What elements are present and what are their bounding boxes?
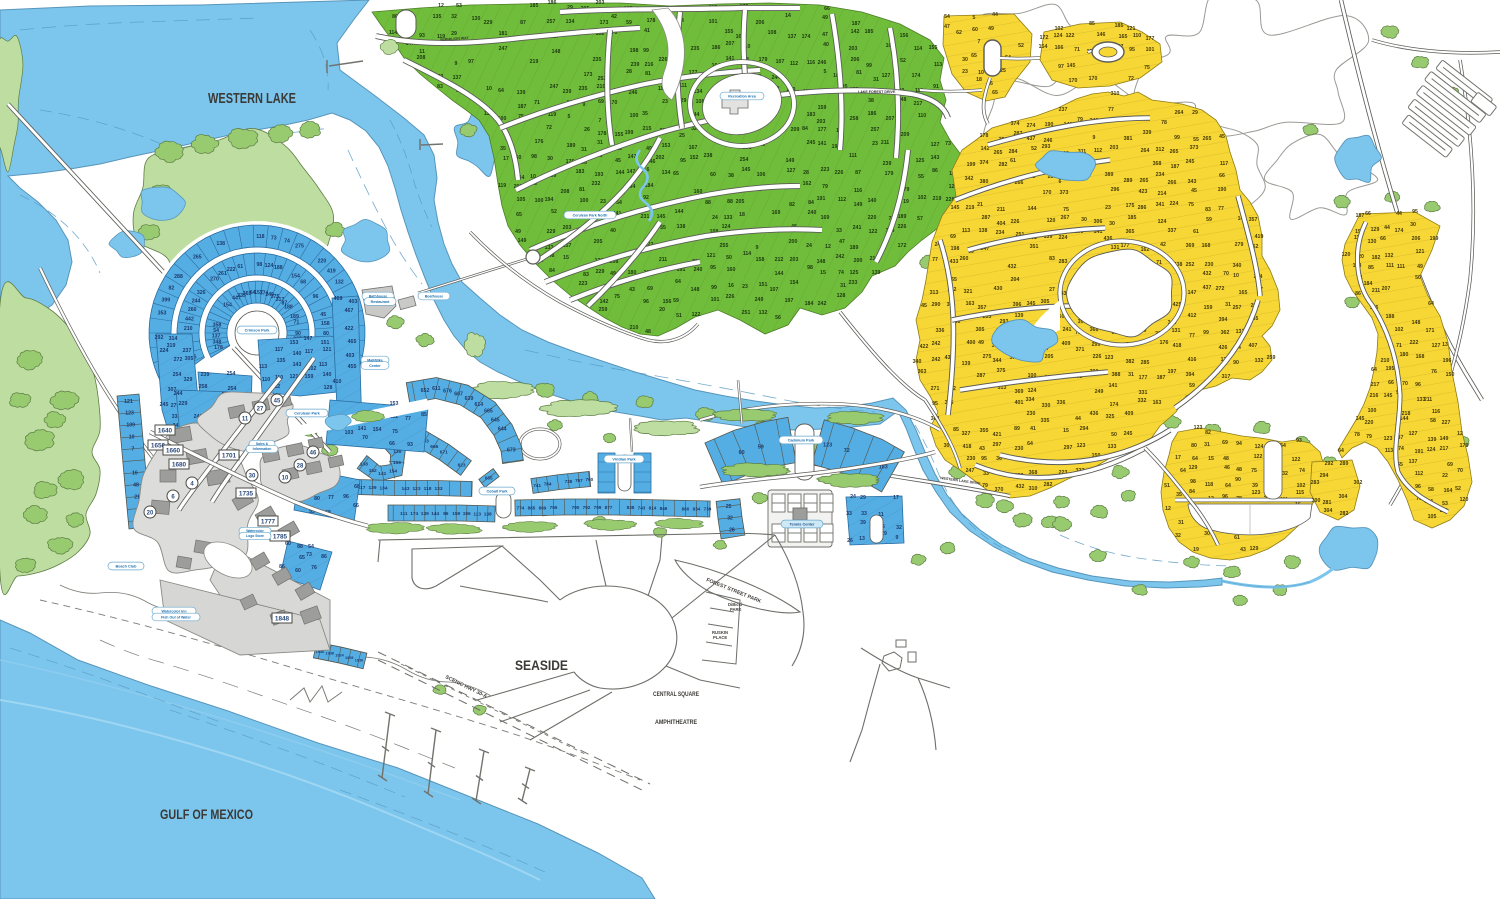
- svg-text:389: 389: [1105, 172, 1114, 178]
- svg-text:160: 160: [727, 267, 736, 273]
- svg-text:235: 235: [579, 86, 588, 92]
- svg-text:51: 51: [676, 313, 682, 319]
- svg-text:117: 117: [275, 347, 283, 353]
- svg-text:86: 86: [321, 554, 327, 560]
- svg-text:289: 289: [1340, 461, 1349, 467]
- svg-text:149: 149: [1440, 436, 1449, 442]
- svg-text:89: 89: [1014, 426, 1020, 432]
- svg-text:207: 207: [726, 41, 735, 47]
- svg-text:342: 342: [965, 176, 974, 182]
- svg-text:784: 784: [544, 482, 552, 487]
- svg-text:137: 137: [453, 75, 462, 81]
- svg-text:110: 110: [262, 377, 270, 383]
- svg-text:292: 292: [155, 335, 164, 341]
- svg-text:145: 145: [1067, 63, 1076, 69]
- svg-text:154: 154: [389, 469, 397, 475]
- svg-text:185: 185: [1115, 23, 1124, 29]
- svg-text:68: 68: [300, 280, 306, 286]
- svg-text:66: 66: [1365, 211, 1371, 217]
- svg-text:179: 179: [885, 171, 894, 177]
- svg-text:83: 83: [1205, 207, 1211, 213]
- svg-text:230: 230: [1015, 446, 1024, 452]
- svg-text:293: 293: [1042, 144, 1051, 150]
- svg-text:107: 107: [770, 287, 779, 293]
- svg-text:21: 21: [977, 202, 983, 208]
- svg-text:177: 177: [1139, 375, 1148, 381]
- svg-text:245: 245: [1124, 431, 1133, 437]
- svg-text:66: 66: [824, 6, 830, 12]
- svg-text:44: 44: [992, 12, 998, 18]
- svg-text:57: 57: [917, 216, 923, 222]
- svg-text:66: 66: [1388, 380, 1394, 386]
- svg-text:220: 220: [868, 215, 877, 221]
- svg-text:242: 242: [836, 254, 845, 260]
- svg-text:120: 120: [1342, 252, 1351, 258]
- svg-text:292: 292: [1325, 461, 1334, 467]
- svg-text:282: 282: [999, 162, 1008, 168]
- svg-text:325: 325: [1106, 414, 1115, 420]
- svg-text:267: 267: [1061, 215, 1070, 221]
- svg-text:95: 95: [1129, 47, 1135, 53]
- svg-text:195: 195: [1386, 366, 1395, 372]
- svg-text:81: 81: [856, 70, 862, 76]
- svg-text:380: 380: [980, 179, 989, 185]
- svg-text:141: 141: [818, 141, 827, 147]
- svg-text:31: 31: [1225, 302, 1231, 308]
- svg-text:217: 217: [914, 101, 923, 107]
- svg-text:202: 202: [656, 155, 665, 161]
- svg-text:75: 75: [614, 294, 620, 300]
- svg-text:80: 80: [1191, 443, 1197, 449]
- svg-text:432: 432: [1008, 264, 1017, 270]
- svg-text:230: 230: [1027, 411, 1036, 417]
- svg-text:287: 287: [982, 215, 991, 221]
- svg-text:341: 341: [1156, 202, 1165, 208]
- svg-text:151: 151: [759, 282, 768, 288]
- svg-text:297: 297: [993, 442, 1002, 448]
- svg-text:239: 239: [883, 161, 892, 167]
- svg-text:9: 9: [756, 245, 759, 251]
- svg-text:611: 611: [432, 386, 440, 392]
- svg-text:129: 129: [1371, 227, 1380, 233]
- svg-text:403: 403: [346, 353, 355, 359]
- svg-text:170: 170: [1069, 78, 1078, 84]
- svg-text:16: 16: [132, 471, 138, 477]
- svg-text:145: 145: [657, 214, 666, 220]
- svg-text:74: 74: [1299, 468, 1305, 474]
- svg-text:211: 211: [881, 140, 889, 146]
- svg-text:15: 15: [1063, 428, 1069, 434]
- svg-text:42: 42: [611, 14, 617, 20]
- svg-text:48: 48: [133, 482, 139, 488]
- svg-text:17: 17: [893, 495, 899, 501]
- svg-text:100: 100: [580, 198, 589, 204]
- svg-text:357: 357: [1249, 217, 1258, 223]
- svg-text:72: 72: [546, 125, 552, 131]
- svg-text:288: 288: [174, 274, 183, 280]
- svg-text:121: 121: [124, 399, 133, 405]
- svg-text:105: 105: [1428, 514, 1437, 520]
- svg-text:373: 373: [1060, 190, 1069, 196]
- svg-text:CENTRAL SQUARE: CENTRAL SQUARE: [653, 691, 699, 698]
- svg-text:Restaurant: Restaurant: [371, 300, 391, 304]
- svg-text:144: 144: [1028, 206, 1037, 212]
- svg-text:125: 125: [916, 158, 925, 164]
- svg-text:403: 403: [349, 299, 358, 305]
- svg-text:132: 132: [1255, 358, 1264, 364]
- svg-text:166: 166: [1055, 45, 1064, 51]
- svg-text:260: 260: [960, 256, 969, 262]
- svg-text:329: 329: [184, 377, 193, 383]
- svg-text:305: 305: [185, 356, 194, 362]
- svg-text:112: 112: [790, 61, 798, 67]
- svg-text:1701: 1701: [222, 453, 237, 460]
- svg-text:169: 169: [821, 215, 830, 221]
- svg-text:272: 272: [174, 357, 183, 363]
- svg-text:358: 358: [213, 322, 222, 328]
- svg-text:152: 152: [690, 155, 699, 161]
- svg-text:59: 59: [758, 444, 764, 450]
- svg-text:436: 436: [1090, 411, 1099, 417]
- svg-text:174: 174: [802, 34, 811, 40]
- svg-text:337: 337: [1168, 228, 1177, 234]
- svg-text:123: 123: [1077, 443, 1086, 449]
- svg-text:116: 116: [854, 188, 862, 194]
- svg-text:304: 304: [1339, 494, 1348, 500]
- svg-text:23: 23: [962, 69, 968, 75]
- svg-text:645: 645: [491, 418, 500, 424]
- svg-text:39: 39: [1252, 483, 1258, 489]
- svg-text:281: 281: [1323, 500, 1332, 506]
- svg-text:70: 70: [362, 435, 368, 441]
- svg-text:66: 66: [389, 441, 395, 447]
- svg-text:258: 258: [199, 384, 208, 390]
- svg-text:44: 44: [1384, 225, 1390, 231]
- svg-text:375: 375: [997, 368, 1006, 374]
- svg-text:15: 15: [563, 255, 569, 261]
- svg-text:400: 400: [967, 340, 976, 346]
- svg-text:289: 289: [1124, 178, 1133, 184]
- svg-text:154: 154: [223, 302, 232, 308]
- svg-text:124: 124: [1054, 33, 1063, 39]
- svg-text:676: 676: [443, 389, 452, 395]
- svg-text:127: 127: [931, 142, 940, 148]
- svg-text:42: 42: [1160, 242, 1166, 248]
- svg-text:186: 186: [548, 0, 557, 6]
- svg-text:30: 30: [962, 57, 968, 63]
- svg-text:176: 176: [1160, 340, 1169, 346]
- svg-text:77: 77: [1218, 206, 1224, 212]
- svg-text:187: 187: [1157, 375, 1166, 381]
- svg-text:77: 77: [405, 416, 411, 422]
- svg-text:374: 374: [1011, 121, 1020, 127]
- svg-text:135: 135: [433, 14, 442, 20]
- svg-text:122: 122: [869, 229, 878, 235]
- svg-text:59: 59: [673, 298, 679, 304]
- svg-text:74: 74: [1398, 446, 1404, 452]
- svg-text:124: 124: [1427, 447, 1436, 453]
- svg-text:137: 137: [212, 334, 221, 340]
- svg-text:199: 199: [625, 130, 634, 136]
- svg-text:344: 344: [993, 358, 1002, 364]
- svg-text:7: 7: [599, 118, 602, 124]
- svg-text:132: 132: [335, 279, 344, 285]
- svg-text:58: 58: [1430, 418, 1436, 424]
- svg-text:PARK: PARK: [730, 607, 742, 612]
- svg-text:217: 217: [1440, 446, 1449, 452]
- svg-text:158: 158: [321, 321, 330, 327]
- svg-text:45: 45: [615, 158, 621, 164]
- svg-text:100: 100: [535, 198, 544, 204]
- svg-text:418: 418: [963, 444, 972, 450]
- svg-text:32: 32: [1175, 533, 1181, 539]
- svg-text:164: 164: [1444, 488, 1453, 494]
- svg-text:208: 208: [417, 55, 426, 61]
- svg-text:394: 394: [1219, 317, 1228, 323]
- svg-text:185: 185: [865, 29, 874, 35]
- svg-text:418: 418: [1173, 343, 1182, 349]
- svg-text:135: 135: [277, 358, 286, 364]
- svg-text:103: 103: [345, 430, 354, 436]
- svg-text:369: 369: [1186, 243, 1195, 249]
- svg-text:29: 29: [860, 495, 866, 501]
- svg-text:Watercolor Inn: Watercolor Inn: [161, 609, 186, 613]
- svg-text:1680: 1680: [172, 462, 187, 469]
- svg-text:60: 60: [295, 568, 301, 574]
- svg-text:348: 348: [213, 339, 222, 345]
- svg-text:Logo Store: Logo Store: [246, 534, 264, 538]
- svg-text:48: 48: [645, 329, 651, 335]
- svg-text:410: 410: [333, 379, 342, 385]
- svg-text:113: 113: [934, 62, 942, 68]
- svg-text:64: 64: [1428, 301, 1434, 307]
- svg-text:87: 87: [520, 20, 526, 26]
- svg-text:156: 156: [900, 33, 909, 39]
- svg-text:168: 168: [1202, 243, 1211, 249]
- svg-text:302: 302: [1354, 480, 1363, 486]
- svg-text:227: 227: [1442, 420, 1451, 426]
- svg-text:60: 60: [739, 450, 745, 456]
- svg-text:422: 422: [345, 326, 354, 332]
- svg-text:143: 143: [931, 155, 940, 161]
- svg-text:814: 814: [649, 506, 657, 511]
- svg-text:20: 20: [659, 307, 665, 313]
- svg-text:159: 159: [305, 374, 314, 380]
- svg-text:151: 151: [321, 340, 330, 346]
- svg-text:73: 73: [271, 235, 277, 241]
- svg-text:24: 24: [850, 494, 856, 500]
- svg-text:124: 124: [1158, 219, 1167, 225]
- svg-text:134: 134: [662, 170, 671, 176]
- svg-text:178: 178: [598, 131, 607, 137]
- svg-text:685: 685: [485, 475, 493, 480]
- svg-text:185: 185: [530, 3, 539, 9]
- svg-text:60: 60: [972, 27, 978, 33]
- svg-text:31: 31: [1128, 372, 1134, 378]
- svg-text:154: 154: [1039, 44, 1048, 50]
- svg-text:77: 77: [932, 257, 938, 263]
- svg-text:35: 35: [642, 111, 648, 117]
- svg-text:226: 226: [1011, 219, 1020, 225]
- svg-text:154: 154: [790, 280, 799, 286]
- svg-text:229: 229: [484, 20, 493, 26]
- svg-text:88: 88: [705, 200, 711, 206]
- svg-text:254: 254: [173, 372, 182, 378]
- svg-text:79: 79: [822, 184, 828, 190]
- svg-text:100: 100: [630, 113, 639, 119]
- svg-text:53: 53: [456, 3, 462, 9]
- svg-text:61: 61: [1234, 535, 1240, 541]
- svg-text:222: 222: [1410, 340, 1419, 346]
- svg-text:1938: 1938: [325, 652, 333, 656]
- svg-text:774: 774: [517, 506, 525, 511]
- svg-text:30: 30: [1109, 221, 1115, 227]
- svg-text:123: 123: [1105, 355, 1114, 361]
- svg-text:216: 216: [1370, 393, 1379, 399]
- svg-text:272: 272: [1216, 286, 1225, 292]
- svg-text:229: 229: [547, 229, 556, 235]
- svg-text:40: 40: [823, 42, 829, 48]
- svg-text:182: 182: [1372, 255, 1381, 261]
- svg-text:74: 74: [284, 239, 290, 245]
- svg-text:32: 32: [896, 525, 902, 531]
- svg-text:174: 174: [410, 511, 418, 517]
- svg-text:134: 134: [379, 486, 387, 492]
- svg-text:374: 374: [980, 160, 989, 166]
- svg-text:159: 159: [1204, 305, 1213, 311]
- svg-text:215: 215: [643, 126, 652, 132]
- svg-text:231: 231: [641, 214, 650, 220]
- svg-text:95: 95: [710, 265, 716, 271]
- svg-text:336: 336: [1057, 400, 1066, 406]
- svg-text:760: 760: [585, 477, 593, 482]
- svg-text:141: 141: [378, 471, 386, 477]
- svg-text:102: 102: [1055, 26, 1064, 32]
- svg-text:294: 294: [1320, 473, 1329, 479]
- svg-text:Beach Club: Beach Club: [116, 564, 138, 568]
- svg-text:148: 148: [1412, 320, 1421, 326]
- svg-text:85: 85: [1089, 21, 1095, 27]
- svg-text:29: 29: [1192, 110, 1198, 116]
- svg-text:76: 76: [311, 565, 317, 571]
- svg-text:60: 60: [285, 541, 291, 547]
- svg-text:154: 154: [373, 427, 382, 433]
- svg-text:258: 258: [850, 116, 859, 122]
- svg-text:30: 30: [1081, 217, 1087, 223]
- svg-text:6: 6: [1059, 179, 1062, 185]
- svg-text:86: 86: [1355, 291, 1361, 297]
- svg-text:123: 123: [1194, 425, 1203, 431]
- svg-text:93: 93: [419, 33, 425, 39]
- svg-text:65: 65: [673, 171, 679, 177]
- svg-text:141: 141: [1109, 383, 1118, 389]
- svg-text:1925: 1925: [345, 656, 353, 660]
- svg-text:64: 64: [1180, 468, 1186, 474]
- svg-text:149: 149: [518, 238, 527, 244]
- svg-text:296: 296: [1111, 187, 1120, 193]
- svg-text:173: 173: [584, 72, 593, 78]
- svg-text:251: 251: [742, 310, 751, 316]
- svg-text:27: 27: [257, 406, 264, 412]
- svg-text:98: 98: [531, 154, 537, 160]
- svg-text:343: 343: [1188, 179, 1197, 185]
- svg-text:86: 86: [932, 168, 938, 174]
- svg-text:102: 102: [918, 195, 927, 201]
- svg-text:75: 75: [1251, 468, 1257, 474]
- svg-text:153: 153: [290, 340, 299, 346]
- svg-text:91: 91: [933, 84, 939, 90]
- svg-text:83: 83: [583, 272, 589, 278]
- svg-text:275: 275: [983, 354, 992, 360]
- svg-text:738: 738: [565, 479, 573, 484]
- svg-text:12: 12: [825, 244, 831, 250]
- svg-text:159: 159: [452, 511, 460, 517]
- svg-text:423: 423: [1139, 189, 1148, 195]
- svg-text:145: 145: [1356, 416, 1365, 422]
- svg-text:792: 792: [583, 505, 591, 510]
- svg-text:38: 38: [728, 173, 734, 179]
- svg-text:159: 159: [393, 460, 401, 466]
- svg-text:327: 327: [962, 431, 971, 437]
- svg-text:52: 52: [1031, 146, 1037, 152]
- svg-text:31: 31: [1204, 442, 1210, 448]
- svg-text:203: 203: [563, 225, 572, 231]
- svg-text:145: 145: [742, 167, 751, 173]
- svg-text:209: 209: [901, 132, 910, 138]
- svg-text:85: 85: [1368, 265, 1374, 271]
- svg-text:124: 124: [722, 224, 731, 230]
- svg-text:81: 81: [645, 71, 651, 77]
- svg-text:30: 30: [547, 156, 553, 162]
- svg-text:69: 69: [1447, 462, 1453, 468]
- svg-text:336: 336: [936, 328, 945, 334]
- svg-text:334: 334: [1026, 397, 1035, 403]
- svg-text:138: 138: [677, 224, 686, 230]
- svg-text:96: 96: [1415, 484, 1421, 490]
- svg-text:25: 25: [726, 504, 732, 510]
- svg-text:290: 290: [932, 302, 941, 308]
- svg-text:142: 142: [851, 29, 860, 35]
- svg-text:90: 90: [1235, 477, 1241, 483]
- svg-text:99: 99: [1203, 330, 1209, 336]
- svg-text:GULF OF MEXICO: GULF OF MEXICO: [160, 807, 253, 822]
- svg-text:197: 197: [1168, 369, 1177, 375]
- svg-text:Fish Out of Water: Fish Out of Water: [161, 615, 191, 619]
- svg-text:45: 45: [1219, 134, 1225, 140]
- svg-text:10: 10: [282, 475, 289, 481]
- svg-text:48: 48: [1236, 467, 1242, 473]
- svg-text:186: 186: [712, 45, 721, 51]
- svg-text:300: 300: [1312, 498, 1321, 504]
- svg-text:314: 314: [169, 336, 178, 342]
- svg-text:188: 188: [274, 265, 283, 271]
- svg-text:140: 140: [293, 351, 302, 357]
- svg-text:154: 154: [291, 274, 300, 280]
- svg-text:102: 102: [1297, 483, 1306, 489]
- svg-text:353: 353: [158, 311, 167, 317]
- svg-text:139: 139: [1428, 437, 1437, 443]
- svg-text:10: 10: [129, 435, 135, 441]
- svg-text:357: 357: [978, 305, 987, 311]
- svg-text:24: 24: [806, 243, 812, 249]
- svg-text:100: 100: [1368, 408, 1377, 414]
- svg-text:98: 98: [257, 262, 263, 268]
- svg-text:95: 95: [932, 401, 938, 407]
- svg-text:388: 388: [1112, 372, 1121, 378]
- svg-text:59: 59: [1206, 217, 1212, 223]
- svg-text:75: 75: [1188, 202, 1194, 208]
- svg-text:10: 10: [978, 70, 984, 76]
